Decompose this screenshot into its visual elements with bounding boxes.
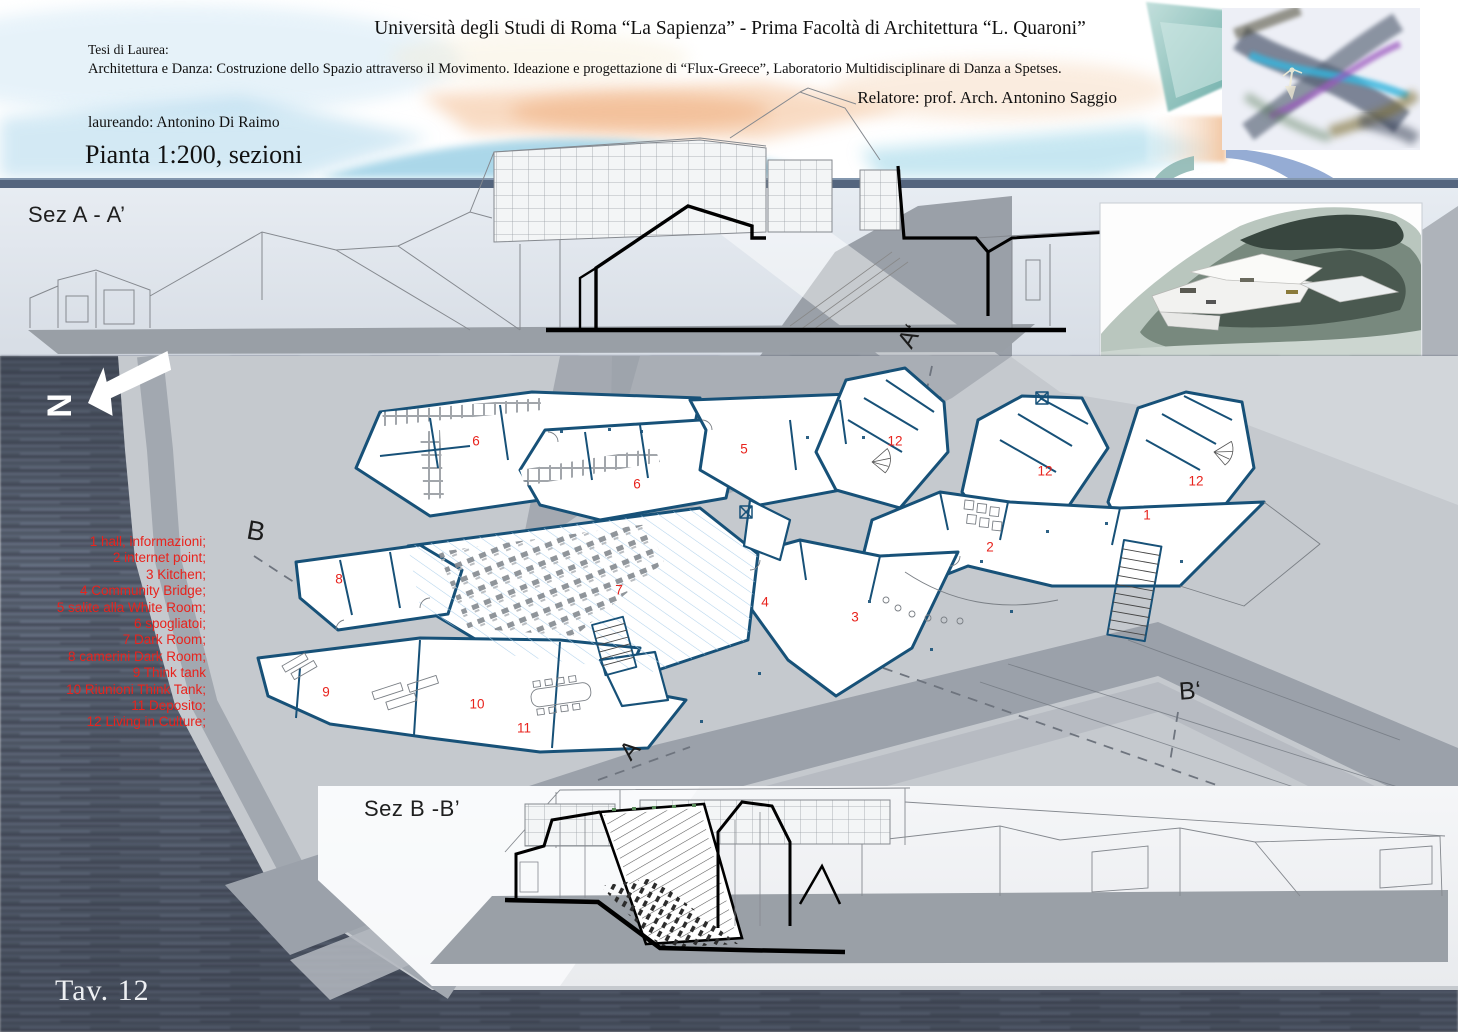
- sheet-title: Pianta 1:200, sezioni: [85, 140, 302, 170]
- north-label: N: [41, 393, 80, 418]
- room-number-3: 3: [851, 610, 859, 625]
- legend-item: 9 Think tank: [20, 665, 206, 681]
- legend-item: 8 camerini Dark Room;: [20, 649, 206, 665]
- room-number-5: 5: [740, 442, 748, 457]
- thesis-line: Architettura e Danza: Costruzione dello …: [88, 61, 1062, 78]
- room-number-12: 12: [887, 434, 902, 449]
- university-title: Università degli Studi di Roma “La Sapie…: [250, 18, 1210, 40]
- advisor-line: Relatore: prof. Arch. Antonino Saggio: [700, 88, 1117, 108]
- section-marker-b-prime: B‘: [1178, 676, 1202, 706]
- student-line: laureando: Antonino Di Raimo: [88, 114, 280, 132]
- legend-item: 7 Dark Room;: [20, 632, 206, 648]
- thesis-label: Tesi di Laurea:: [88, 42, 169, 58]
- presentation-board: Università degli Studi di Roma “La Sapie…: [0, 0, 1458, 1032]
- site-3d-inset: [1100, 203, 1422, 371]
- room-number-7: 7: [615, 583, 623, 598]
- room-number-8: 8: [335, 572, 343, 587]
- room-number-4: 4: [761, 595, 769, 610]
- legend-item: 12 Living in Culture;: [20, 714, 206, 730]
- room-number-2: 2: [986, 540, 994, 555]
- room-number-6: 6: [633, 477, 641, 492]
- sheet-number: Tav. 12: [55, 974, 150, 1008]
- room-number-9: 9: [322, 685, 330, 700]
- legend-item: 5 salite alla White Room;: [20, 600, 206, 616]
- legend-item: 6 spogliatoi;: [20, 616, 206, 632]
- legend-item: 3 Kitchen;: [20, 567, 206, 583]
- room-number-12: 12: [1037, 464, 1052, 479]
- legend-item: 10 Riunioni Think Tank;: [20, 682, 206, 698]
- room-number-1: 1: [1143, 508, 1151, 523]
- section-b-label: Sez B -B’: [364, 796, 460, 822]
- legend-item: 1 hall, informazioni;: [20, 534, 206, 550]
- dance-abstract-image: [1222, 8, 1420, 150]
- room-number-11: 11: [517, 721, 531, 736]
- room-legend: 1 hall, informazioni;2 internet point;3 …: [20, 534, 206, 731]
- legend-item: 4 Community Bridge;: [20, 583, 206, 599]
- room-number-10: 10: [469, 697, 484, 712]
- section-a-label: Sez A - A’: [28, 202, 126, 228]
- room-number-12: 12: [1188, 474, 1203, 489]
- room-number-6: 6: [472, 434, 480, 449]
- legend-item: 2 internet point;: [20, 550, 206, 566]
- legend-item: 11 Deposito;: [20, 698, 206, 714]
